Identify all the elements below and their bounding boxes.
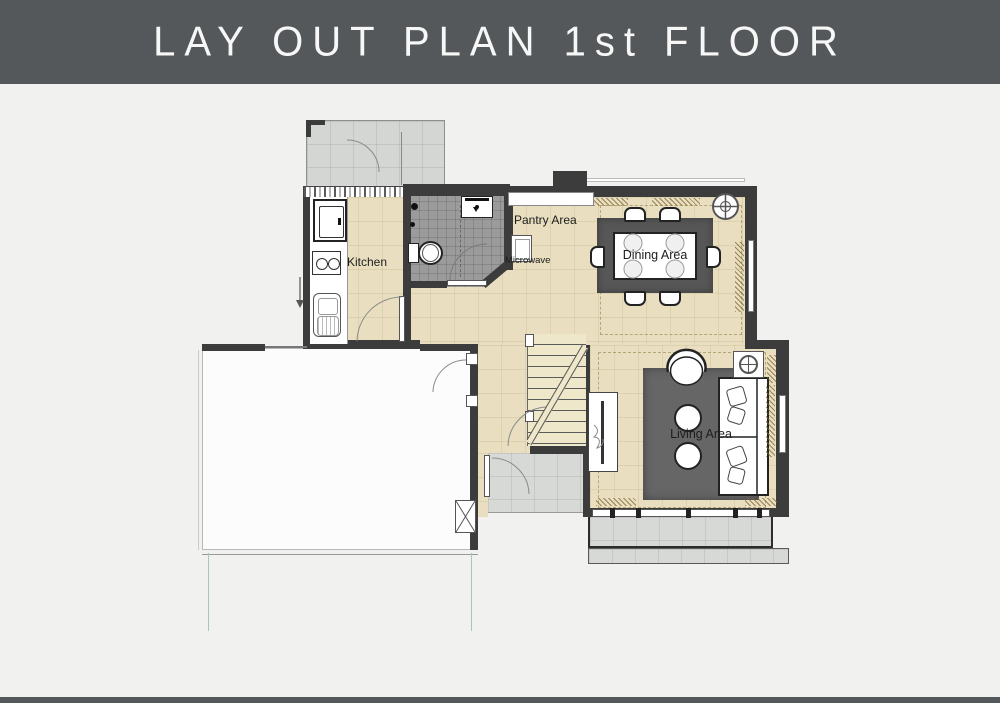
deck-door-arc [347,140,379,172]
sofa-pillow-4 [727,467,745,485]
place-setting-4 [666,260,684,278]
living-label: Living Area [643,427,759,441]
kitchen-label: Kitchen [347,255,387,269]
floor-plan-page: { "title": "LAY OUT PLAN 1st FLOOR", "la… [0,0,1000,703]
garage-door-arc [433,360,466,392]
place-setting-3 [624,260,642,278]
kitchen-door-arc [357,297,401,341]
stair-break-line-1 [531,349,587,445]
armchair-seat [671,357,703,385]
entry-arrow-head [296,300,304,308]
sofa-pillow-1 [726,386,747,407]
pantry-label: Pantry Area [514,213,577,227]
entry-door-arc [492,458,529,494]
toilet-seat-inner [423,245,439,262]
sofa-pillow-2 [727,406,746,425]
linework-overlay [0,0,1000,703]
stair-break-band [529,347,585,443]
plant-scribble [594,425,603,448]
dining-label: Dining Area [613,248,697,262]
bathroom-door-arc [450,244,487,280]
stair-break-line-2 [527,344,583,440]
sofa-pillow-3 [726,445,748,467]
washbasin-faucet [473,207,479,212]
microwave-label: Microwave [505,255,550,266]
